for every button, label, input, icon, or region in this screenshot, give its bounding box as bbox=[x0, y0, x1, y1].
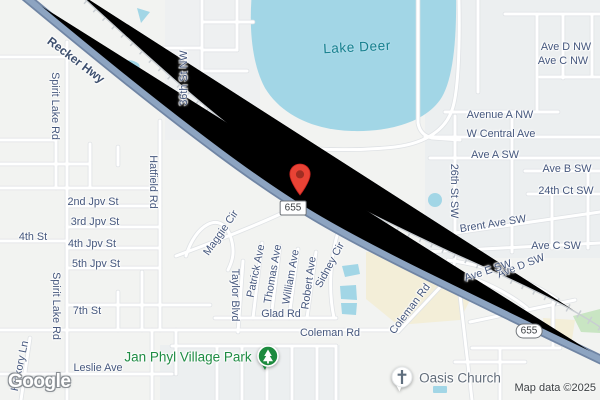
road-label-leslie-ave: Leslie Ave bbox=[73, 362, 122, 374]
dropped-pin-icon[interactable] bbox=[288, 163, 312, 196]
road-label-spirit-lake-rd-n: Spirit Lake Rd bbox=[49, 72, 61, 140]
road-label-taylor-blvd: Taylor Blvd bbox=[229, 269, 241, 322]
route-shield-655-center: 655 bbox=[280, 201, 307, 216]
road-label-ave-b-sw: Ave B SW bbox=[542, 163, 591, 175]
road-label-avenue-a-nw: Avenue A NW bbox=[467, 109, 533, 121]
road-label-w-central-ave: W Central Ave bbox=[467, 128, 536, 140]
road-label-7th-st: 7th St bbox=[73, 305, 101, 317]
road-label-hatfield-rd: Hatfield Rd bbox=[147, 155, 159, 208]
route-shield-655-south: 655 bbox=[516, 324, 543, 339]
road-label-ave-a-sw: Ave A SW bbox=[471, 149, 519, 161]
church-cross-icon[interactable] bbox=[390, 366, 414, 393]
park-tree-icon[interactable] bbox=[256, 345, 280, 372]
poi-label-oasis-church[interactable]: Oasis Church bbox=[419, 371, 501, 386]
poi-label-jan-phyl-village-park[interactable]: Jan Phyl Village Park bbox=[124, 350, 251, 365]
road-label-ave-d-nw: Ave D NW bbox=[541, 41, 591, 53]
road-label-4th-st: 4th St bbox=[19, 231, 47, 243]
google-logo[interactable]: Google bbox=[8, 371, 70, 393]
road-label-3rd-jpv-st: 3rd Jpv St bbox=[71, 216, 120, 228]
road-label-4th-jpv-st: 4th Jpv St bbox=[68, 238, 116, 250]
road-label-26th-st-sw: 26th St SW bbox=[448, 164, 460, 219]
map-viewport[interactable]: Lake Deer Recker Hwy Spirit Lake Rd 36th… bbox=[0, 0, 600, 400]
road-label-coleman-rd-w: Coleman Rd bbox=[300, 327, 360, 339]
road-label-5th-jpv-st: 5th Jpv St bbox=[72, 258, 120, 270]
road-label-ave-c-nw: Ave C NW bbox=[538, 55, 588, 67]
road-label-ave-c-sw: Ave C SW bbox=[531, 240, 581, 252]
road-label-glad-rd: Glad Rd bbox=[261, 308, 301, 320]
road-label-2nd-jpv-st: 2nd Jpv St bbox=[67, 196, 118, 208]
map-attribution: Map data ©2025 bbox=[515, 382, 597, 394]
road-label-36th-st-nw: 36th St NW bbox=[178, 50, 190, 105]
road-label-spirit-lake-rd-s: Spirit Lake Rd bbox=[50, 272, 62, 340]
road-label-24th-ct-sw: 24th Ct SW bbox=[538, 185, 593, 197]
